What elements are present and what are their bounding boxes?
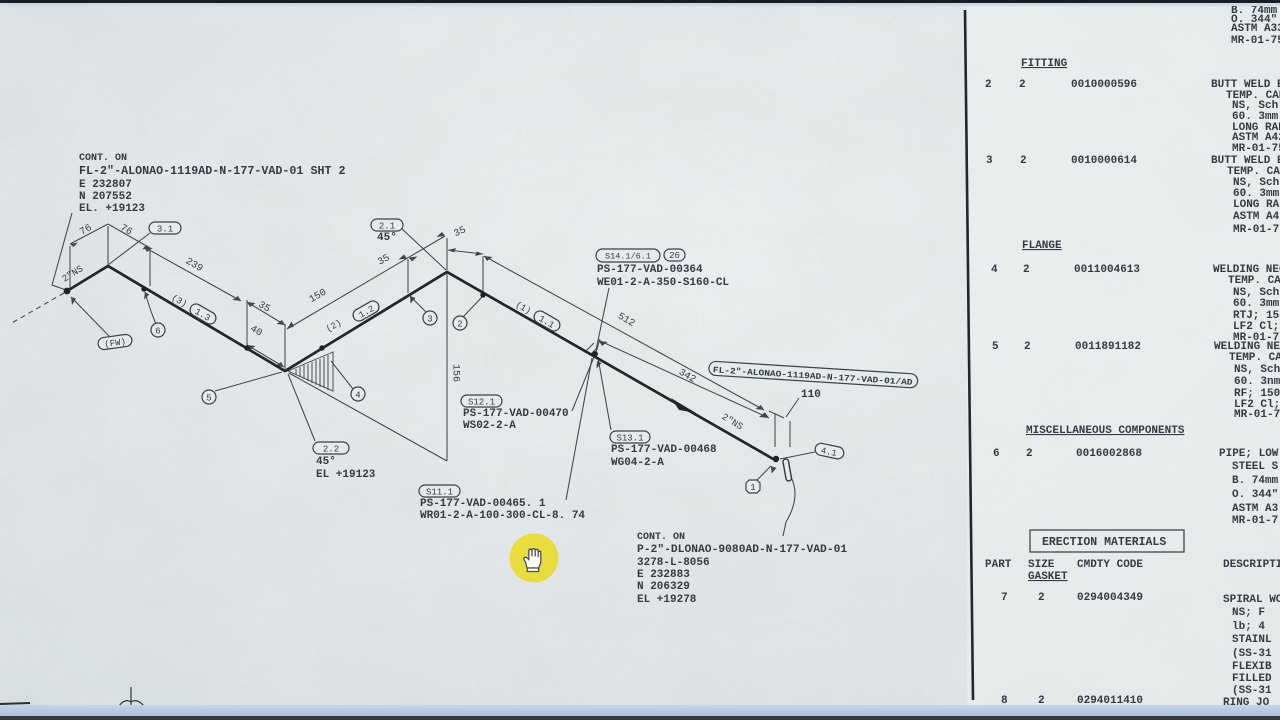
svg-text:B. 74mm: B. 74mm <box>1232 475 1279 487</box>
svg-text:CMDTY CODE: CMDTY CODE <box>1077 559 1143 571</box>
svg-text:MISCELLANEOUS COMPONENTS: MISCELLANEOUS COMPONENTS <box>1026 425 1185 437</box>
svg-text:3: 3 <box>986 155 993 167</box>
svg-text:FILLED: FILLED <box>1232 673 1272 685</box>
svg-text:ASTM A3: ASTM A3 <box>1232 503 1279 515</box>
svg-text:FLANGE: FLANGE <box>1022 240 1062 252</box>
svg-text:0294004349: 0294004349 <box>1077 592 1143 604</box>
svg-text:110: 110 <box>801 389 821 401</box>
svg-text:26: 26 <box>669 251 680 261</box>
svg-text:3278-L-8056: 3278-L-8056 <box>637 557 710 569</box>
svg-text:PS-177-VAD-00364: PS-177-VAD-00364 <box>597 264 703 276</box>
svg-text:0016002868: 0016002868 <box>1076 448 1142 460</box>
svg-text:STEEL S: STEEL S <box>1232 461 1279 473</box>
svg-text:EL +19278: EL +19278 <box>637 594 697 606</box>
svg-text:4: 4 <box>991 264 998 276</box>
svg-text:WE01-2-A-350-S160-CL: WE01-2-A-350-S160-CL <box>597 277 729 289</box>
svg-text:ASTM A420: ASTM A420 <box>1233 211 1280 223</box>
svg-text:EL. +19123: EL. +19123 <box>79 203 145 215</box>
svg-text:N 206329: N 206329 <box>637 581 690 593</box>
svg-text:ERECTION MATERIALS: ERECTION MATERIALS <box>1042 536 1166 549</box>
svg-text:N 207552: N 207552 <box>79 191 132 203</box>
svg-text:E 232807: E 232807 <box>79 179 132 191</box>
svg-text:1: 1 <box>750 483 755 493</box>
svg-text:ASTM A33: ASTM A33 <box>1231 23 1280 35</box>
svg-text:2: 2 <box>1024 341 1031 353</box>
svg-text:CONT. ON: CONT. ON <box>637 532 685 543</box>
svg-text:lb; 4: lb; 4 <box>1232 621 1265 633</box>
svg-text:STAINL: STAINL <box>1232 634 1272 646</box>
svg-text:0011004613: 0011004613 <box>1074 264 1140 276</box>
svg-text:E 232883: E 232883 <box>637 569 690 581</box>
svg-text:5: 5 <box>992 341 999 353</box>
svg-text:2: 2 <box>457 320 462 330</box>
svg-text:FL-2"-ALONAO-1119AD-N-177-VAD-: FL-2"-ALONAO-1119AD-N-177-VAD-01 SHT 2 <box>79 164 346 178</box>
svg-text:FITTING: FITTING <box>1021 58 1068 70</box>
svg-text:6: 6 <box>993 448 1000 460</box>
svg-text:5: 5 <box>206 394 211 404</box>
svg-text:GASKET: GASKET <box>1028 571 1068 583</box>
svg-text:WR01-2-A-100-300-CL-8. 74: WR01-2-A-100-300-CL-8. 74 <box>420 510 585 522</box>
svg-text:PART: PART <box>985 559 1012 571</box>
svg-text:2: 2 <box>985 79 992 91</box>
svg-text:45°: 45° <box>316 456 336 468</box>
svg-text:60. 3nm B: 60. 3nm B <box>1234 376 1280 388</box>
svg-text:156: 156 <box>450 364 461 382</box>
svg-text:WG04-2-A: WG04-2-A <box>611 457 664 469</box>
svg-text:MR-01-75: MR-01-75 <box>1233 224 1280 236</box>
svg-text:FLEXIB: FLEXIB <box>1232 661 1272 673</box>
svg-text:O. 344": O. 344" <box>1232 489 1278 501</box>
svg-text:0010000614: 0010000614 <box>1071 155 1137 167</box>
svg-text:2.2: 2.2 <box>323 445 339 455</box>
svg-text:NS, Sch 8: NS, Sch 8 <box>1234 364 1280 376</box>
svg-text:MR-01-75: MR-01-75 <box>1232 143 1280 155</box>
svg-text:0010000596: 0010000596 <box>1071 79 1137 91</box>
svg-text:7: 7 <box>1001 592 1008 604</box>
svg-text:DESCRIPTI: DESCRIPTI <box>1223 559 1280 571</box>
svg-text:45°: 45° <box>377 232 397 244</box>
svg-text:3: 3 <box>427 315 432 325</box>
svg-text:2: 2 <box>1019 79 1026 91</box>
svg-text:SPIRAL WO: SPIRAL WO <box>1223 594 1280 606</box>
svg-text:PS-177-VAD-00468: PS-177-VAD-00468 <box>611 444 717 456</box>
svg-text:SIZE: SIZE <box>1028 559 1055 571</box>
svg-text:P-2"-DLONAO-9080AD-N-177-VAD-0: P-2"-DLONAO-9080AD-N-177-VAD-01 <box>637 544 847 556</box>
svg-text:S13.1: S13.1 <box>616 434 643 444</box>
svg-text:MR-01-7: MR-01-7 <box>1232 515 1278 527</box>
svg-text:WS02-2-A: WS02-2-A <box>463 420 516 432</box>
svg-text:60. 3mm B: 60. 3mm B <box>1233 298 1280 310</box>
svg-text:4: 4 <box>355 391 360 401</box>
svg-text:2: 2 <box>1026 448 1033 460</box>
svg-text:S14.1/6.1: S14.1/6.1 <box>605 252 651 262</box>
svg-text:2: 2 <box>1020 155 1027 167</box>
svg-text:S11.1: S11.1 <box>426 488 453 498</box>
svg-text:0011891182: 0011891182 <box>1075 341 1141 353</box>
svg-text:PS-177-VAD-00465. 1: PS-177-VAD-00465. 1 <box>420 498 546 510</box>
svg-text:(SS-31: (SS-31 <box>1232 685 1272 697</box>
svg-text:EL +19123: EL +19123 <box>316 469 376 481</box>
svg-text:LONG RADIU: LONG RADIU <box>1233 199 1280 211</box>
svg-text:3.1: 3.1 <box>157 225 173 235</box>
svg-text:PIPE; LOW: PIPE; LOW <box>1219 448 1279 460</box>
svg-text:PS-177-VAD-00470: PS-177-VAD-00470 <box>463 408 569 420</box>
svg-text:S12.1: S12.1 <box>468 398 495 408</box>
svg-text:2.1: 2.1 <box>379 222 395 232</box>
svg-text:CONT. ON: CONT. ON <box>79 153 127 164</box>
svg-text:NS; F: NS; F <box>1232 607 1265 619</box>
svg-text:2: 2 <box>1038 592 1045 604</box>
svg-text:TEMP. CAR: TEMP. CAR <box>1229 352 1280 364</box>
svg-text:(SS-31: (SS-31 <box>1232 648 1272 660</box>
svg-text:MR-01-75: MR-01-75 <box>1234 409 1280 421</box>
svg-text:MR-01-75: MR-01-75 <box>1231 35 1280 47</box>
svg-text:2: 2 <box>1023 264 1030 276</box>
svg-text:TEMP. CAR: TEMP. CAR <box>1228 275 1280 287</box>
svg-text:6: 6 <box>155 327 160 337</box>
